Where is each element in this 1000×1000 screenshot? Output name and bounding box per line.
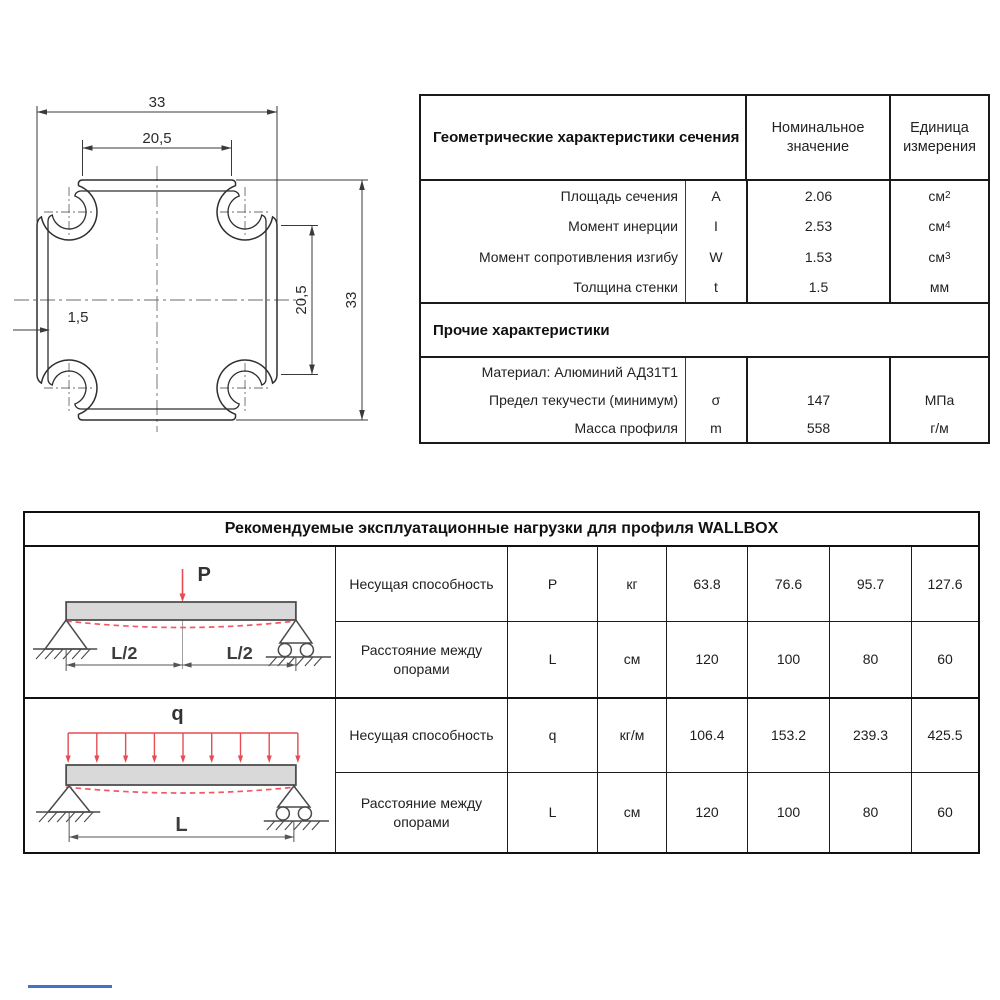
geo-row-value: 2.53 bbox=[748, 211, 891, 241]
half-span-label-right: L/2 bbox=[227, 643, 253, 663]
geo-row-value: 1.53 bbox=[748, 242, 891, 272]
deflection-curve bbox=[66, 787, 296, 793]
geo-row-symbol bbox=[686, 358, 748, 386]
cross-section-drawing: 33 20,5 20,5 33 1,5 bbox=[10, 80, 390, 450]
load-row-label: Несущая способность bbox=[336, 547, 508, 622]
roller-support bbox=[266, 620, 331, 666]
geometry-table-title: Геометрические характеристики сечения bbox=[421, 96, 747, 179]
point-load-diagram-svg: P bbox=[25, 547, 335, 697]
load-row-symbol: q bbox=[508, 699, 598, 773]
dim-top-inner-label: 20,5 bbox=[142, 130, 171, 147]
beam bbox=[66, 602, 296, 620]
load-row-symbol: L bbox=[508, 622, 598, 697]
geo-row-label: Момент инерции bbox=[421, 211, 686, 241]
geo-row-value: 147 bbox=[748, 386, 891, 414]
geo-row-symbol: I bbox=[686, 211, 748, 241]
dim-right-inner-label: 20,5 bbox=[293, 285, 310, 314]
distributed-load-arrowheads bbox=[66, 756, 301, 764]
col-header-unit: Единица измерения bbox=[891, 96, 988, 179]
beam-diagram-point-load: P bbox=[25, 547, 336, 697]
geo-row-unit: г/м bbox=[891, 414, 988, 442]
geo-row-unit: см3 bbox=[891, 242, 988, 272]
unit-base: см bbox=[928, 188, 945, 204]
load-row-value: 80 bbox=[830, 622, 912, 697]
unit-base: см bbox=[928, 249, 945, 265]
load-row-unit: кг bbox=[598, 547, 667, 622]
load-row-value: 425.5 bbox=[912, 699, 978, 773]
load-row-symbol: L bbox=[508, 773, 598, 852]
geo-row-label: Материал: Алюминий АД31Т1 bbox=[421, 358, 686, 386]
load-row-value: 239.3 bbox=[830, 699, 912, 773]
point-load-label: P bbox=[198, 564, 211, 586]
geo-row-value: 2.06 bbox=[748, 181, 891, 211]
geometry-rows-2: Материал: Алюминий АД31Т1 Предел текучес… bbox=[421, 358, 988, 442]
center-lines bbox=[14, 166, 304, 432]
loads-table-title: Рекомендуемые эксплуатационные нагрузки … bbox=[25, 513, 978, 547]
load-row-value: 60 bbox=[912, 622, 978, 697]
geo-row-unit: см2 bbox=[891, 181, 988, 211]
point-load-arrowhead bbox=[179, 594, 185, 603]
load-row-label: Расстояние между опорами bbox=[336, 773, 508, 852]
loads-section-point: P bbox=[25, 547, 978, 697]
blue-line bbox=[28, 985, 112, 988]
load-row-unit: см bbox=[598, 773, 667, 852]
geometry-rows: Площадь сечения A 2.06 см2 Момент инерци… bbox=[421, 181, 988, 304]
geo-row-value: 1.5 bbox=[748, 272, 891, 302]
load-row-unit: см bbox=[598, 622, 667, 697]
dim-right-outer-label: 33 bbox=[343, 292, 360, 309]
distributed-load-label: q bbox=[171, 703, 183, 725]
geo-row-symbol: W bbox=[686, 242, 748, 272]
geo-row-label: Предел текучести (минимум) bbox=[421, 386, 686, 414]
span-dimension bbox=[66, 649, 296, 671]
load-row-value: 63.8 bbox=[667, 547, 748, 622]
geo-row-unit: МПа bbox=[891, 386, 988, 414]
unit-base: мм bbox=[930, 279, 949, 295]
cross-section-svg: 33 20,5 20,5 33 1,5 bbox=[10, 80, 390, 450]
pinned-support bbox=[33, 620, 97, 659]
pinned-support bbox=[36, 786, 100, 822]
geo-row-symbol: σ bbox=[686, 386, 748, 414]
geo-row-label: Толщина стенки bbox=[421, 272, 686, 302]
geo-row-unit: мм bbox=[891, 272, 988, 302]
dim-top-outer-label: 33 bbox=[149, 94, 166, 111]
geo-row-label: Масса профиля bbox=[421, 414, 686, 442]
load-row-label: Несущая способность bbox=[336, 699, 508, 773]
dimension-arrows bbox=[37, 109, 365, 420]
loads-table: Рекомендуемые эксплуатационные нагрузки … bbox=[23, 511, 980, 854]
load-row-value: 80 bbox=[830, 773, 912, 852]
geo-row-label: Момент сопротивления изгибу bbox=[421, 242, 686, 272]
deflection-curve bbox=[66, 621, 296, 628]
roller-support bbox=[264, 786, 329, 830]
unit-base: см bbox=[928, 218, 945, 234]
geometry-table-header: Геометрические характеристики сечения Но… bbox=[421, 96, 988, 181]
geo-row-value: 558 bbox=[748, 414, 891, 442]
col-header-nominal: Номинальное значение bbox=[747, 96, 891, 179]
beam-diagram-distributed-load: q bbox=[25, 699, 336, 852]
geo-row-symbol: A bbox=[686, 181, 748, 211]
load-row-value: 100 bbox=[748, 773, 830, 852]
distributed-load-arrows bbox=[68, 733, 298, 758]
span-label: L bbox=[175, 814, 187, 836]
geometry-table: Геометрические характеристики сечения Но… bbox=[419, 94, 990, 444]
load-row-value: 60 bbox=[912, 773, 978, 852]
distributed-load-diagram-svg: q bbox=[25, 699, 335, 852]
dimension-lines bbox=[13, 106, 368, 420]
geo-row-symbol: t bbox=[686, 272, 748, 302]
load-row-value: 100 bbox=[748, 622, 830, 697]
load-row-value: 106.4 bbox=[667, 699, 748, 773]
loads-section-distributed: q bbox=[25, 697, 978, 852]
geo-row-unit bbox=[891, 358, 988, 386]
load-row-value: 95.7 bbox=[830, 547, 912, 622]
geo-row-label: Площадь сечения bbox=[421, 181, 686, 211]
half-span-label-left: L/2 bbox=[111, 643, 137, 663]
dim-wall-label: 1,5 bbox=[68, 309, 89, 326]
load-row-unit: кг/м bbox=[598, 699, 667, 773]
other-characteristics-band: Прочие характеристики bbox=[421, 304, 988, 358]
geo-row-unit: см4 bbox=[891, 211, 988, 241]
load-row-value: 153.2 bbox=[748, 699, 830, 773]
load-row-value: 127.6 bbox=[912, 547, 978, 622]
load-row-value: 120 bbox=[667, 773, 748, 852]
geo-row-value bbox=[748, 358, 891, 386]
load-row-value: 120 bbox=[667, 622, 748, 697]
load-row-label: Расстояние между опорами bbox=[336, 622, 508, 697]
load-row-symbol: P bbox=[508, 547, 598, 622]
load-row-value: 76.6 bbox=[748, 547, 830, 622]
geo-row-symbol: m bbox=[686, 414, 748, 442]
beam bbox=[66, 765, 296, 785]
